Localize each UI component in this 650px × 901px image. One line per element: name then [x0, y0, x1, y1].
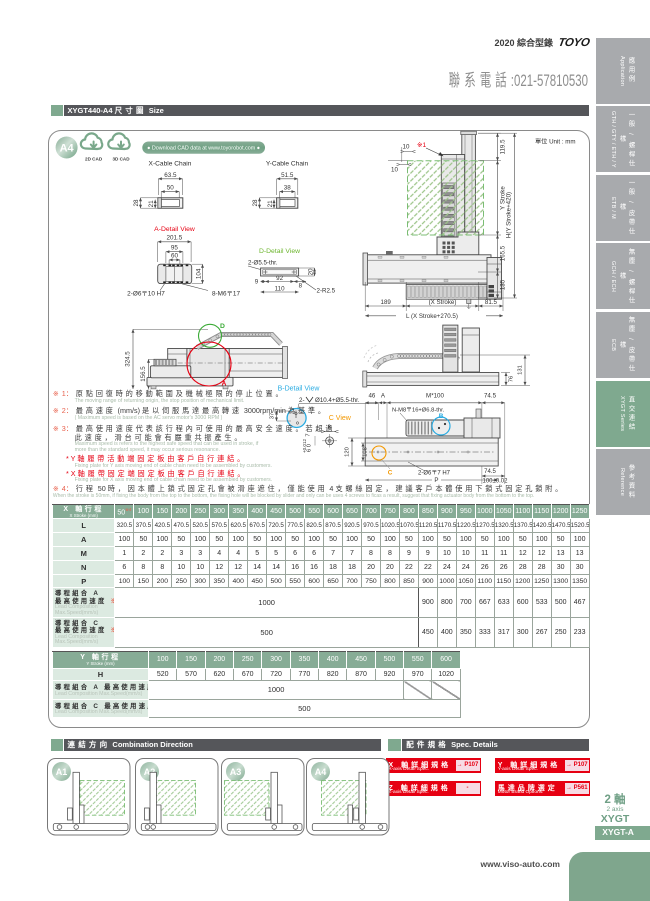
- svg-text:A1: A1: [56, 767, 68, 777]
- svg-text:8-M6〒17: 8-M6〒17: [212, 291, 241, 298]
- svg-text:B: B: [439, 413, 444, 420]
- svg-text:6 0: 6 0: [307, 444, 313, 452]
- svg-text:M*100: M*100: [426, 393, 444, 400]
- svg-text:A: A: [222, 381, 227, 388]
- svg-text:95: 95: [171, 244, 179, 251]
- svg-text:120: 120: [345, 447, 351, 457]
- svg-text:165.5: 165.5: [500, 245, 507, 261]
- svg-text:C: C: [388, 470, 393, 477]
- svg-text:2D CAD: 2D CAD: [85, 157, 103, 162]
- svg-text:119.5: 119.5: [500, 139, 507, 155]
- svg-text:(X Stroke): (X Stroke): [429, 299, 457, 306]
- svg-text:TOYO: TOYO: [557, 37, 591, 49]
- svg-text:Y-Cable Chain: Y-Cable Chain: [266, 161, 309, 168]
- svg-text:※1: ※1: [417, 142, 427, 149]
- svg-text:21: 21: [267, 200, 274, 208]
- svg-text:2-Ø6〒7 H7: 2-Ø6〒7 H7: [418, 470, 451, 477]
- svg-text:D: D: [220, 323, 225, 330]
- svg-text:9: 9: [255, 279, 259, 286]
- svg-text:A-Detail View: A-Detail View: [154, 226, 195, 233]
- svg-text:81.5: 81.5: [485, 299, 498, 306]
- svg-text:2-R2.5: 2-R2.5: [317, 288, 336, 295]
- svg-text:A4: A4: [60, 143, 75, 155]
- svg-text:● Download CAD data at www.toy: ● Download CAD data at www.toyorobot.com…: [147, 146, 260, 152]
- svg-text:N-M8〒16+Ø6.8-thr.: N-M8〒16+Ø6.8-thr.: [392, 407, 445, 414]
- svg-text:104: 104: [195, 268, 202, 279]
- svg-text:D-Detail View: D-Detail View: [259, 248, 300, 255]
- svg-text:8: 8: [299, 283, 303, 290]
- svg-text:A4: A4: [315, 767, 327, 777]
- svg-text:P: P: [434, 477, 438, 484]
- svg-text:108: 108: [363, 447, 369, 457]
- svg-text:189: 189: [381, 299, 392, 306]
- svg-text:L (X Stroke+270.5): L (X Stroke+270.5): [406, 313, 458, 320]
- svg-text:H(Y Stroke+420): H(Y Stroke+420): [506, 192, 513, 238]
- svg-text:131: 131: [518, 365, 524, 375]
- svg-text:28: 28: [133, 199, 140, 207]
- svg-text:7: 7: [306, 433, 312, 436]
- svg-text:38: 38: [284, 185, 292, 192]
- svg-text:A: A: [381, 393, 386, 400]
- svg-text:10: 10: [391, 167, 398, 174]
- svg-text:21: 21: [148, 200, 155, 208]
- svg-text:201.5: 201.5: [167, 234, 183, 241]
- svg-text:74.5: 74.5: [484, 469, 496, 475]
- svg-text:Ø10.4+Ø5.5-thr.: Ø10.4+Ø5.5-thr.: [315, 397, 360, 404]
- svg-text:2-Ø5.5-thr.: 2-Ø5.5-thr.: [248, 260, 278, 267]
- svg-text:A3: A3: [230, 767, 242, 777]
- svg-text:110: 110: [275, 285, 285, 292]
- svg-text:50: 50: [167, 185, 175, 192]
- svg-text:單位 Unit : mm: 單位 Unit : mm: [535, 138, 576, 146]
- svg-text:92: 92: [276, 275, 283, 282]
- svg-text:324.5: 324.5: [125, 351, 132, 367]
- svg-text:C View: C View: [329, 415, 352, 422]
- svg-text:X-Cable Chain: X-Cable Chain: [149, 161, 192, 168]
- svg-text:156.5: 156.5: [140, 366, 147, 382]
- svg-text:20: 20: [307, 268, 314, 276]
- svg-text:76: 76: [509, 376, 515, 382]
- svg-text:51.5: 51.5: [281, 172, 294, 179]
- svg-text:63.5: 63.5: [164, 172, 177, 179]
- svg-text:10: 10: [403, 144, 410, 151]
- svg-text:74.5: 74.5: [484, 393, 497, 400]
- svg-text:2-: 2-: [299, 397, 305, 404]
- svg-text:46: 46: [368, 393, 375, 400]
- svg-text:3D CAD: 3D CAD: [112, 157, 130, 162]
- svg-text:60: 60: [171, 253, 179, 260]
- svg-text:28: 28: [252, 199, 259, 207]
- svg-text:2-Ø6〒10 H7: 2-Ø6〒10 H7: [127, 291, 165, 298]
